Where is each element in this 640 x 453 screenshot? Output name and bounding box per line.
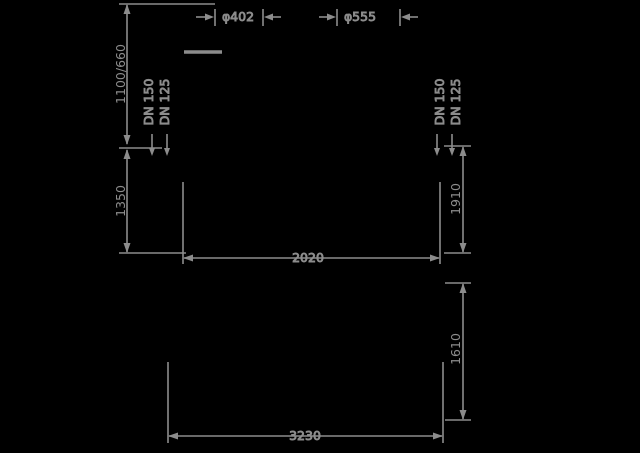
dim-label-height-right: 1910 xyxy=(448,183,463,215)
dim-label-dia-small: φ402 xyxy=(222,9,254,24)
arrow-down-icon xyxy=(124,243,131,253)
arrow-left-icon xyxy=(264,14,273,21)
dn-label: DN 150 xyxy=(432,79,447,126)
arrow-right-icon xyxy=(327,14,336,21)
arrow-left-icon xyxy=(168,433,178,440)
dn-label: DN 125 xyxy=(448,79,463,126)
arrow-down-icon xyxy=(124,135,131,145)
arrow-down-icon xyxy=(449,148,455,156)
arrow-down-icon xyxy=(434,148,440,156)
dn-label: DN 150 xyxy=(141,79,156,126)
dim-label-width: 3230 xyxy=(289,428,321,443)
arrow-right-icon xyxy=(205,14,214,21)
bottom-view-dimensions: 1610 3230 xyxy=(168,283,471,443)
arrow-down-icon xyxy=(149,148,155,156)
technical-drawing-canvas: 1100/660 1350 DN 150 DN 125 φ402 φ555 xyxy=(0,0,640,453)
arrow-down-icon xyxy=(164,148,170,156)
arrow-left-icon xyxy=(183,255,193,262)
dimension-drawing: 1100/660 1350 DN 150 DN 125 φ402 φ555 xyxy=(0,0,640,453)
dim-label-dia-large: φ555 xyxy=(344,9,376,24)
arrow-up-icon xyxy=(124,149,131,159)
arrow-up-icon xyxy=(460,283,467,293)
dim-label-width: 2020 xyxy=(292,250,324,265)
top-view-dimensions: 1100/660 1350 DN 150 DN 125 φ402 φ555 xyxy=(113,4,471,265)
arrow-right-icon xyxy=(433,433,443,440)
dn-label: DN 125 xyxy=(157,79,172,126)
arrow-left-icon xyxy=(401,14,410,21)
arrow-down-icon xyxy=(460,243,467,253)
dim-label-height-lower: 1350 xyxy=(113,185,128,217)
arrow-up-icon xyxy=(124,4,131,14)
arrow-right-icon xyxy=(430,255,440,262)
dim-label-height-upper: 1100/660 xyxy=(113,44,128,104)
arrow-down-icon xyxy=(460,410,467,420)
dim-label-height: 1610 xyxy=(448,333,463,365)
arrow-up-icon xyxy=(460,146,467,156)
